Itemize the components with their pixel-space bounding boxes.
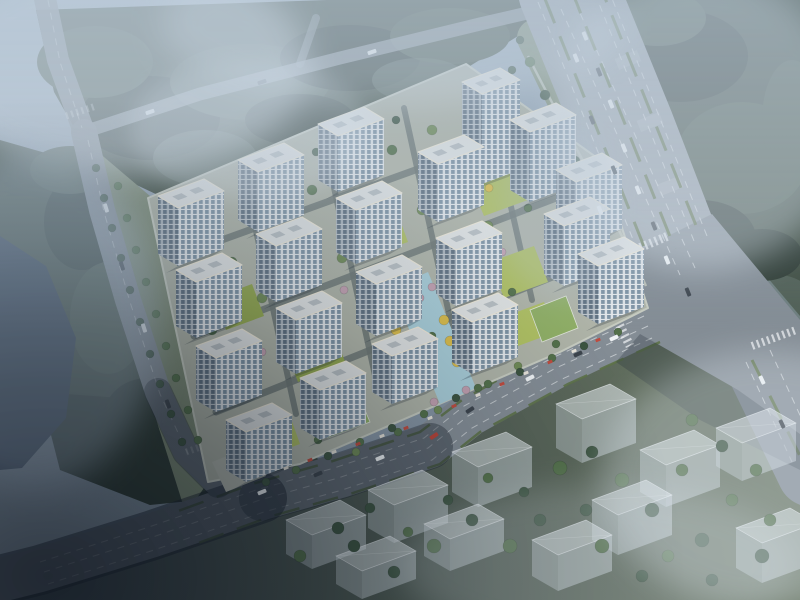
aerial-render-image: Aerial architectural rendering of a resi… <box>0 0 800 600</box>
atmosphere-layer <box>0 0 800 600</box>
scene-canvas: Aerial architectural rendering of a resi… <box>0 0 800 600</box>
